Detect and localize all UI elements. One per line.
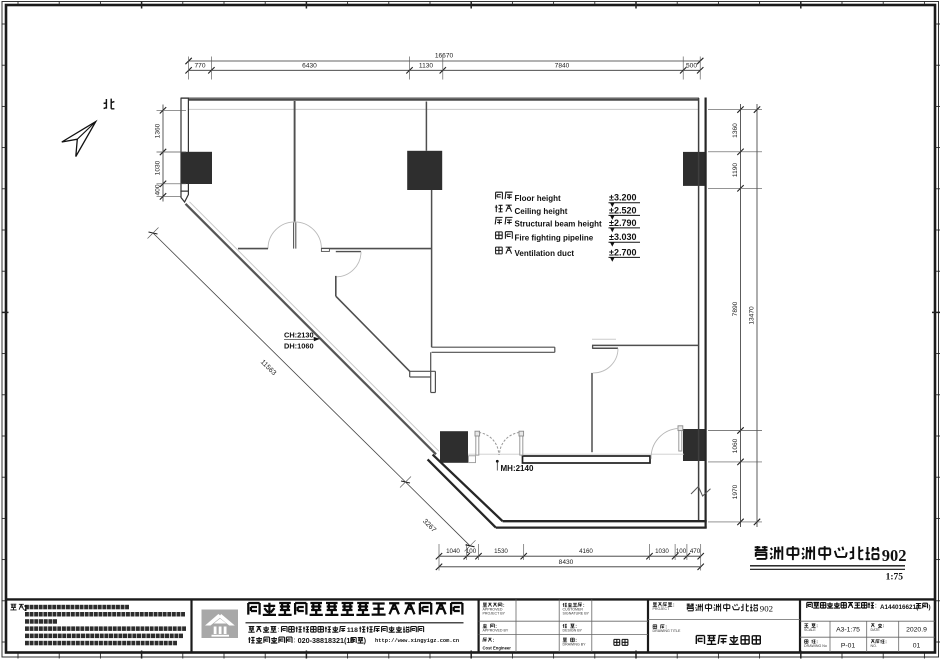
svg-text:118: 118 <box>347 627 358 634</box>
svg-text:6430: 6430 <box>302 63 317 70</box>
svg-text:APPROVED BY: APPROVED BY <box>483 629 509 633</box>
svg-text:±3.200: ±3.200 <box>609 193 636 203</box>
svg-text:SIGNATURE BY: SIGNATURE BY <box>563 611 590 615</box>
svg-text:13470: 13470 <box>749 306 756 325</box>
svg-text:1030: 1030 <box>655 548 669 555</box>
svg-text:1190: 1190 <box>732 163 739 178</box>
svg-text:100: 100 <box>676 548 687 555</box>
svg-text:1130: 1130 <box>419 63 434 70</box>
svg-text:Ceiling height: Ceiling height <box>515 207 568 216</box>
svg-text:DATE: DATE <box>871 628 881 632</box>
svg-text:Floor height: Floor height <box>515 194 562 203</box>
svg-text:2020.9: 2020.9 <box>906 627 927 634</box>
svg-text:4160: 4160 <box>579 548 593 555</box>
svg-text:Structural beam height: Structural beam height <box>515 219 602 228</box>
svg-text:MH:2140: MH:2140 <box>501 464 534 473</box>
svg-text:1030: 1030 <box>155 160 162 175</box>
svg-text:16670: 16670 <box>435 53 454 60</box>
svg-text:P-01: P-01 <box>841 643 856 650</box>
svg-text:Fire fighting pipeline: Fire fighting pipeline <box>515 234 594 243</box>
svg-text:SCALE: SCALE <box>804 628 816 632</box>
svg-text:±2.790: ±2.790 <box>609 218 636 228</box>
svg-text:): ) <box>929 604 931 611</box>
svg-text:7840: 7840 <box>555 63 570 70</box>
svg-text:770: 770 <box>194 63 205 70</box>
svg-text:NO.: NO. <box>871 644 877 648</box>
svg-text:1530: 1530 <box>494 548 508 555</box>
svg-text:1360: 1360 <box>155 123 162 138</box>
svg-text:100: 100 <box>466 548 477 555</box>
svg-text:PROJECT BY: PROJECT BY <box>483 611 506 615</box>
svg-text:±3.030: ±3.030 <box>609 232 636 242</box>
svg-text:1040: 1040 <box>446 548 460 555</box>
svg-text:8430: 8430 <box>559 559 574 566</box>
svg-text:1:75: 1:75 <box>886 573 904 583</box>
svg-text:902: 902 <box>760 604 773 614</box>
svg-text:1360: 1360 <box>732 123 739 138</box>
svg-text:DRAWING TITLE: DRAWING TITLE <box>653 629 682 633</box>
svg-text:±2.520: ±2.520 <box>609 205 636 215</box>
svg-text:CH:2130: CH:2130 <box>284 331 314 340</box>
svg-text:470: 470 <box>690 548 701 555</box>
svg-text:±2.700: ±2.700 <box>609 247 636 257</box>
svg-text:7890: 7890 <box>732 301 739 316</box>
svg-text:020-38818321(10: 020-38818321(10 <box>298 636 355 645</box>
svg-text:A144016621(: A144016621( <box>880 604 919 611</box>
svg-text:902: 902 <box>882 546 907 565</box>
svg-text:1970: 1970 <box>732 484 739 499</box>
svg-text:500: 500 <box>686 63 697 70</box>
svg-text:Cost Engineer: Cost Engineer <box>483 646 512 651</box>
svg-text:A3-1:75: A3-1:75 <box>836 627 860 634</box>
svg-text:http://www.xingyigz.com.cn: http://www.xingyigz.com.cn <box>375 638 459 644</box>
svg-text:01: 01 <box>913 643 921 650</box>
svg-text:Ventilation duct: Ventilation duct <box>515 249 575 258</box>
svg-text:DRAWING BY: DRAWING BY <box>563 643 587 647</box>
svg-text:400: 400 <box>155 184 162 195</box>
svg-text:DH:1060: DH:1060 <box>284 342 314 351</box>
svg-text:1060: 1060 <box>732 438 739 453</box>
svg-text:PROJECT: PROJECT <box>653 607 671 611</box>
svg-text:DESIGN BY: DESIGN BY <box>563 629 583 633</box>
svg-text:DRAWING No: DRAWING No <box>804 644 827 648</box>
